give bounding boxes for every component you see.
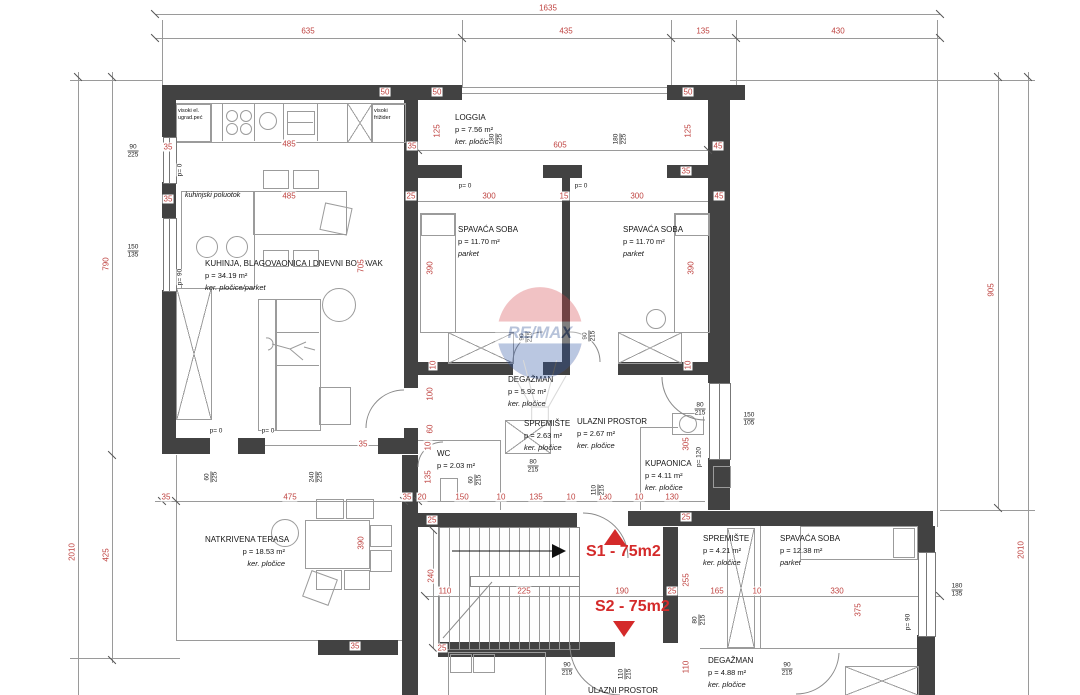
dimension-label: 905 <box>987 282 996 297</box>
dimension-label: 190 <box>614 587 629 596</box>
dimension-label: 475 <box>282 493 297 502</box>
opening-size-label: 60225 <box>204 472 219 483</box>
line <box>462 93 667 94</box>
wall <box>917 526 935 552</box>
dimension-label: 100 <box>426 386 435 401</box>
window <box>163 218 177 292</box>
line <box>736 20 737 85</box>
dimension-label: 165 <box>709 587 724 596</box>
dimension-label: 2010 <box>1017 540 1026 560</box>
furniture-outline <box>293 170 319 189</box>
wall <box>667 85 745 100</box>
line <box>70 658 180 659</box>
room-label: SPREMIŠTEp = 4.21 m²ker. pločice <box>703 533 749 569</box>
dimension-label: 50 <box>432 88 443 97</box>
dimension-label: 1635 <box>538 4 558 13</box>
dimension-label: 300 <box>481 192 496 201</box>
furniture-outline <box>370 525 392 547</box>
room-label: SPAVAĆA SOBAp = 11.70 m²parket <box>458 224 518 260</box>
dimension-label: 225 <box>516 587 531 596</box>
dimension-label: 485 <box>281 192 296 201</box>
wardrobe <box>176 288 212 420</box>
line <box>410 201 730 202</box>
wardrobe <box>845 666 919 695</box>
wall <box>708 100 730 178</box>
opening-size-label: 180225 <box>489 134 504 145</box>
dimension-label: 10 <box>752 587 763 596</box>
room-label: ULAZNI PROSTOR <box>588 685 658 695</box>
furniture-outline <box>275 299 321 431</box>
furniture-circle <box>226 110 238 122</box>
furniture-circle <box>240 110 252 122</box>
furniture-outline <box>421 214 455 236</box>
dimension-label: 485 <box>281 140 296 149</box>
dimension-label: 35 <box>161 493 172 502</box>
dimension-label: 25 <box>681 513 692 522</box>
dimension-label: 390 <box>426 260 435 275</box>
line <box>155 38 940 39</box>
opening-size-label: 110215 <box>618 669 633 680</box>
furniture-circle <box>196 236 218 258</box>
dimension-label: 635 <box>300 27 315 36</box>
line <box>155 501 705 502</box>
dimension-label: 300 <box>629 192 644 201</box>
opening-size-label: 110215 <box>591 485 606 496</box>
dimension-label: 35 <box>163 195 174 204</box>
line <box>78 72 79 695</box>
furniture-circle <box>226 123 238 135</box>
dimension-label: 10 <box>424 441 433 452</box>
wall <box>917 635 935 695</box>
furniture-outline <box>370 550 392 572</box>
wall <box>162 438 210 454</box>
dimension-label: 790 <box>102 256 111 271</box>
line <box>998 72 999 508</box>
dimension-label: 240 <box>427 568 436 583</box>
furniture-circle <box>240 123 252 135</box>
dimension-label: 25 <box>437 644 448 653</box>
line <box>730 80 1035 81</box>
line <box>462 87 667 88</box>
annotation-label: visoki el. ugrad.peć <box>178 108 202 121</box>
wall <box>162 290 176 438</box>
parapet-label: p= 120 <box>696 447 703 467</box>
furniture-circle <box>679 415 697 433</box>
room-label: LOGGIAp = 7.56 m²ker. pločice <box>455 112 493 148</box>
dimension-label: 135 <box>695 27 710 36</box>
dimension-label: 25 <box>667 587 678 596</box>
unit-s2-label: S2 - 75m2 <box>595 598 670 616</box>
furniture-circle <box>259 112 277 130</box>
parapet-label: p= 90 <box>905 614 912 630</box>
line <box>671 20 672 85</box>
line <box>112 72 113 663</box>
dimension-label: 605 <box>552 141 567 150</box>
window <box>709 383 731 460</box>
dimension-label: 255 <box>682 572 691 587</box>
wall <box>238 438 265 454</box>
dimension-label: 125 <box>433 123 442 138</box>
dimension-label: 10 <box>634 493 645 502</box>
line <box>176 455 177 640</box>
dimension-label: 10 <box>496 493 507 502</box>
unit-s2-marker-icon <box>613 621 635 637</box>
furniture-outline <box>319 387 351 425</box>
opening-size-label: 80215 <box>528 459 539 474</box>
wall <box>162 100 176 137</box>
stair-rail <box>470 576 580 587</box>
opening-size-label: 180225 <box>613 134 628 145</box>
line <box>940 510 1035 511</box>
annotation-label: visoki frižider <box>374 108 391 121</box>
dimension-label: 375 <box>854 602 863 617</box>
room-label: KUPAONICAp = 4.11 m²ker. pločice <box>645 458 692 494</box>
dimension-label: 330 <box>829 587 844 596</box>
dimension-label: 705 <box>357 258 366 273</box>
parapet-label: p= 0 <box>459 183 472 190</box>
dimension-label: 135 <box>528 493 543 502</box>
annotation-label: kuhinjski poluotok <box>185 193 240 200</box>
furniture-outline <box>450 654 472 673</box>
dimension-label: 50 <box>380 88 391 97</box>
dimension-label: 435 <box>558 27 573 36</box>
dimension-label: 35 <box>350 642 361 651</box>
dimension-label: 20 <box>417 493 428 502</box>
parapet-label: p= 0 <box>210 428 223 435</box>
parapet-label: p= 0 <box>177 164 184 177</box>
dimension-label: 425 <box>102 547 111 562</box>
dimension-label: 25 <box>427 516 438 525</box>
furniture-outline <box>319 202 352 235</box>
opening-size-label: 80215 <box>692 615 707 626</box>
wall <box>402 455 418 695</box>
opening-size-label: 90215 <box>782 662 793 677</box>
furniture-circle <box>226 236 248 258</box>
furniture-outline <box>893 528 915 558</box>
dimension-label: 10 <box>566 493 577 502</box>
line <box>937 20 938 527</box>
parapet-label: p= 0 <box>262 428 275 435</box>
dimension-label: 50 <box>683 88 694 97</box>
wall <box>628 511 933 526</box>
wall <box>543 165 582 178</box>
arc-path <box>366 390 404 428</box>
dimension-label: 35 <box>402 493 413 502</box>
dimension-label: 305 <box>682 436 691 451</box>
arc-path <box>796 653 839 694</box>
wall <box>404 428 418 445</box>
wall <box>418 513 577 527</box>
opening-size-label: 80215 <box>695 402 706 417</box>
wall <box>708 178 730 383</box>
furniture-outline <box>473 654 495 673</box>
room-label: SPAVAĆA SOBAp = 12.38 m²parket <box>780 533 840 569</box>
opening-size-label: 180135 <box>952 583 963 598</box>
dimension-label: 390 <box>357 535 366 550</box>
line <box>418 150 708 151</box>
furniture-outline <box>287 111 315 135</box>
room-label: SPAVAĆA SOBAp = 11.70 m²parket <box>623 224 683 260</box>
remax-watermark-text: RE/MAX <box>508 323 574 342</box>
opening-size-label: 60215 <box>468 475 483 486</box>
dimension-label: 110 <box>438 587 453 596</box>
line <box>700 648 917 649</box>
dimension-label: 10 <box>684 360 693 371</box>
dimension-label: 35 <box>407 142 418 151</box>
parapet-label: p= 0 <box>575 183 588 190</box>
line <box>462 20 463 87</box>
line <box>162 20 163 85</box>
dimension-label: 45 <box>713 142 724 151</box>
dimension-label: 130 <box>664 493 679 502</box>
room-label: WCp = 2.03 m² <box>437 448 475 472</box>
line <box>433 530 434 648</box>
room-label: DEGAŽMANp = 4.88 m²ker. pločice <box>708 655 753 691</box>
room-label: NATKRIVENA TERASAp = 18.53 m²ker. pločic… <box>205 534 285 570</box>
dimension-label: 135 <box>424 469 433 484</box>
furniture-outline <box>316 499 344 519</box>
opening-size-label: 150105 <box>744 412 755 427</box>
dimension-label: 15 <box>559 192 570 201</box>
dimension-label: 125 <box>684 123 693 138</box>
dimension-label: 35 <box>358 440 369 449</box>
furniture-circle <box>646 309 666 329</box>
floor-plan: S1 - 75m2 S2 - 75m2 RE/MAX 1635635435135… <box>0 0 1080 695</box>
wardrobe <box>618 332 682 364</box>
window <box>918 552 936 637</box>
opening-size-label: 240225 <box>309 472 324 483</box>
unit-s1-label: S1 - 75m2 <box>586 543 661 561</box>
furniture-outline <box>263 170 289 189</box>
furniture-outline <box>344 570 370 590</box>
dimension-label: 2010 <box>68 542 77 562</box>
furniture-outline <box>713 466 731 488</box>
line <box>1028 72 1029 695</box>
dimension-label: 25 <box>406 192 417 201</box>
dimension-label: 35 <box>681 167 692 176</box>
wall <box>663 527 678 643</box>
wall <box>404 165 462 178</box>
dimension-label: 150 <box>454 493 469 502</box>
opening-size-label: 150135 <box>128 244 139 259</box>
dimension-label: 60 <box>426 424 435 435</box>
wall <box>162 85 404 100</box>
furniture-outline <box>346 499 374 519</box>
dimension-label: 390 <box>687 260 696 275</box>
dimension-label: 110 <box>682 660 691 675</box>
dimension-label: 10 <box>429 360 438 371</box>
dimension-label: 45 <box>714 192 725 201</box>
remax-balloon-icon: RE/MAX <box>487 284 593 430</box>
wardrobe <box>347 103 373 143</box>
opening-size-label: 90215 <box>562 662 573 677</box>
stair-direction-arrow-icon <box>552 544 566 558</box>
dimension-label: 35 <box>163 143 174 152</box>
parapet-label: p= 90 <box>177 269 184 285</box>
dimension-label: 430 <box>830 27 845 36</box>
line <box>155 14 940 15</box>
opening-size-label: 90225 <box>128 144 139 159</box>
